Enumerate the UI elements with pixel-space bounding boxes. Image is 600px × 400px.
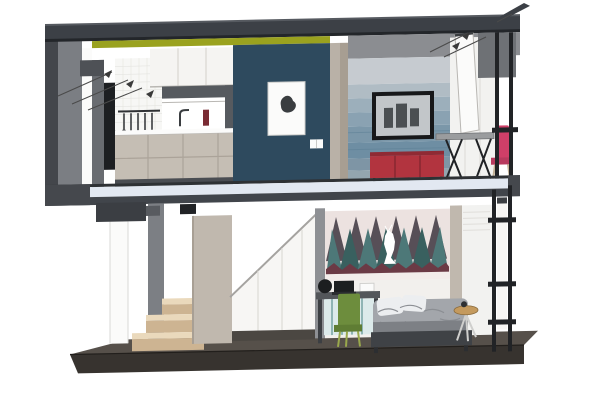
ceiling-bracket-box: [96, 202, 146, 222]
window-post: [495, 33, 499, 180]
ceiling-bracket-lip: [146, 206, 160, 216]
hood-shelf: [162, 85, 233, 98]
trestle-desk-top: [436, 133, 494, 140]
slab-left-cap: [45, 184, 90, 206]
forest-mural: [325, 209, 450, 282]
wall-divider: [330, 43, 348, 183]
utensil-rail: [118, 111, 160, 112]
ladder-rung: [488, 217, 516, 223]
wardrobe-bracket: [180, 204, 196, 214]
bedroom-light-switch: [360, 283, 374, 291]
pillow: [376, 296, 404, 316]
pillow: [401, 295, 426, 313]
green-chair-seat: [334, 324, 362, 332]
tv-screen-content: [384, 108, 393, 128]
divider-dark: [340, 43, 348, 183]
hood-side-frame: [225, 85, 233, 130]
tv-screen-content: [396, 103, 407, 127]
mural-stripe: [348, 57, 450, 85]
sideboard-body: [370, 155, 444, 179]
living-room: [348, 32, 520, 183]
render-svg: [0, 0, 600, 400]
window-post: [509, 32, 513, 179]
divider-light: [330, 43, 340, 183]
laptop-screen: [334, 281, 354, 293]
ladder-rail: [508, 185, 512, 351]
thin-wall-panel: [110, 204, 128, 343]
tv: [372, 91, 434, 140]
wall-step-box: [80, 60, 104, 77]
black-panel: [104, 83, 116, 170]
bottle: [203, 110, 209, 126]
navy-accent-wall: [233, 43, 330, 183]
wardrobe-panel: [192, 215, 232, 344]
ladder-rung: [488, 281, 516, 287]
closet-plinth: [232, 329, 315, 341]
access-ladder: [488, 185, 516, 352]
wall-layer-dark: [45, 41, 58, 189]
ladder-panel-cap: [497, 197, 507, 203]
bedroom: [316, 205, 492, 355]
stool-top: [454, 305, 478, 315]
desk-leg: [318, 299, 322, 343]
ladder-rail: [492, 190, 496, 352]
apartment-section-render: [0, 0, 600, 400]
green-chair-back: [338, 293, 360, 326]
pink-chair-seat: [491, 157, 511, 164]
bed-leg: [464, 345, 468, 351]
wall-layer-mid: [92, 60, 104, 188]
window-crossbar: [492, 127, 518, 133]
tv-screen-content: [410, 108, 419, 126]
wall-layer-grey: [58, 34, 82, 189]
bed-leg: [374, 347, 378, 353]
ladder-rung: [488, 319, 516, 325]
bed: [371, 293, 472, 353]
upper-cabinets: [150, 47, 233, 87]
building-section: [45, 3, 538, 374]
